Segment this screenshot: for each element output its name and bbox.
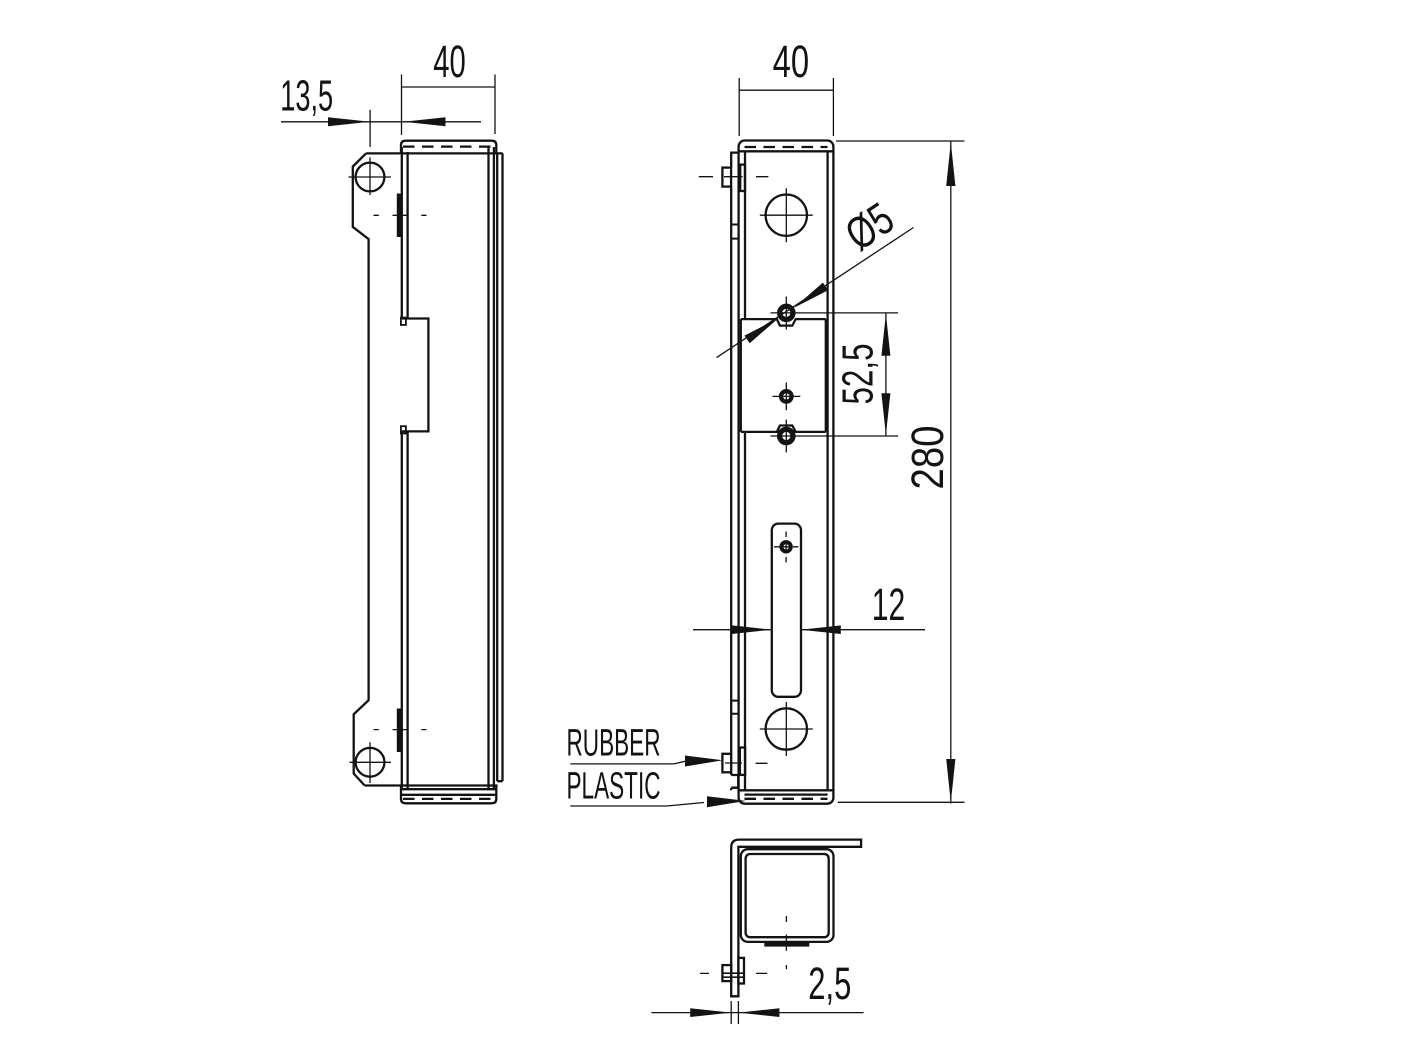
svg-text:2,5: 2,5 — [808, 958, 851, 1009]
svg-text:40: 40 — [433, 36, 466, 87]
svg-text:13,5: 13,5 — [280, 73, 333, 121]
svg-text:RUBBER: RUBBER — [567, 723, 661, 765]
svg-text:40: 40 — [773, 36, 810, 87]
svg-text:52,5: 52,5 — [833, 344, 882, 405]
svg-text:12: 12 — [872, 579, 906, 630]
svg-text:PLASTIC: PLASTIC — [567, 766, 661, 808]
svg-text:280: 280 — [902, 426, 953, 490]
